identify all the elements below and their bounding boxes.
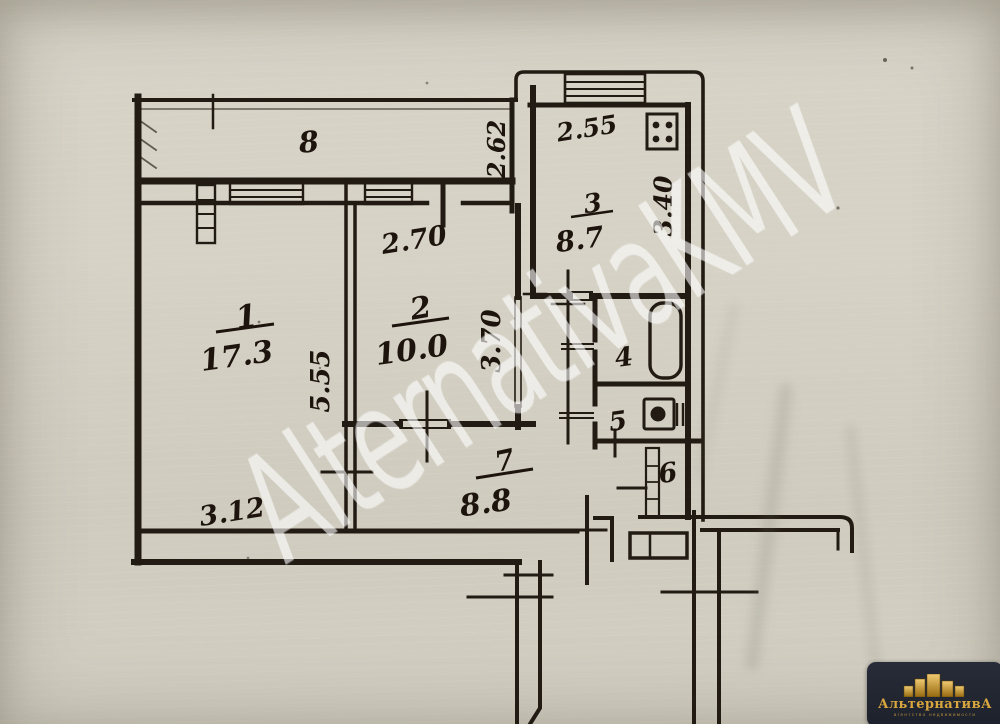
- room-area: 8.7: [552, 220, 606, 260]
- buildings-icon: [902, 674, 968, 697]
- dim-room2-depth: 3.70: [477, 309, 507, 372]
- wall-pier: [197, 185, 215, 243]
- room-label-bath: 4: [613, 342, 635, 374]
- floor-plan-drawing: 8 1 17.3 2 10.0 3 8.7 7 8.8: [0, 0, 1000, 724]
- room-label-living: 1 17.3: [198, 298, 275, 379]
- room-label-bedroom: 2 10.0: [373, 289, 450, 372]
- room-label-balcony: 8: [296, 124, 321, 160]
- window-kitchen: [565, 74, 645, 103]
- room-number: 8: [296, 124, 321, 160]
- room-label-wc: 5: [607, 406, 629, 438]
- scanned-floor-plan-photo: 8 1 17.3 2 10.0 3 8.7 7 8.8: [0, 0, 1000, 724]
- labels: 8 1 17.3 2 10.0 3 8.7 7 8.8: [197, 109, 679, 533]
- dim-kitchen-width: 2.55: [554, 109, 620, 147]
- room-label-kitchen: 3 8.7: [552, 188, 613, 259]
- toilet-icon: [644, 399, 683, 429]
- agency-logo: АльтернативА агентство недвижимости: [867, 662, 1000, 724]
- bathtub-icon: [650, 303, 681, 378]
- room-area: 17.3: [198, 334, 275, 379]
- dim-balcony-width: 2.62: [482, 120, 511, 179]
- dim-room2-width: 2.70: [378, 220, 449, 261]
- dim-room1-width: 3.12: [197, 492, 267, 533]
- dim-kitchen-depth: 3.40: [649, 175, 678, 236]
- room-area: 8.8: [457, 483, 515, 525]
- stove-icon: [647, 114, 677, 149]
- dim-room1-depth: 5.55: [306, 349, 336, 412]
- room-area: 10.0: [373, 328, 450, 373]
- room-label-closet: 6: [656, 457, 679, 490]
- logo-title: АльтернативА: [878, 698, 992, 711]
- room-label-hall: 7 8.8: [457, 442, 533, 524]
- logo-tagline: агентство недвижимости: [894, 712, 977, 718]
- closet-partition: [646, 448, 659, 517]
